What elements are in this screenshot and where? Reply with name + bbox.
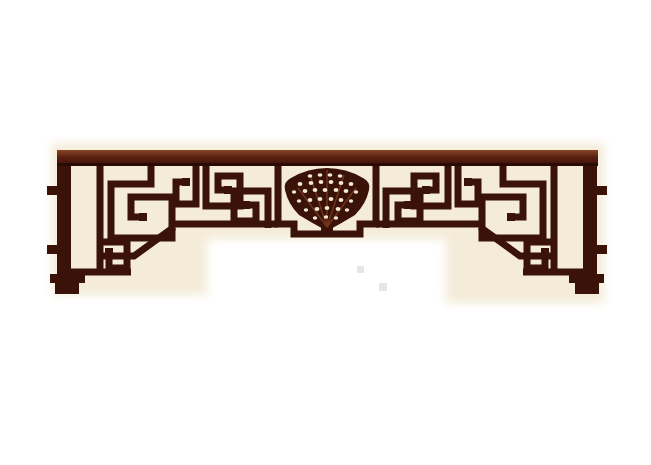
post-tenon-lower — [47, 245, 57, 254]
fan-hole — [323, 188, 328, 192]
fan-hole — [315, 207, 320, 211]
post-tenon-upper — [47, 186, 57, 195]
fan-hole — [298, 182, 303, 186]
fan-hole — [318, 173, 323, 177]
fan-hole — [303, 189, 308, 193]
fan-hole — [336, 207, 341, 211]
fan-hole — [345, 208, 349, 212]
fan-hole — [297, 199, 301, 203]
fan-hole — [308, 198, 313, 202]
fan-hole — [329, 180, 334, 184]
fan-hole — [339, 198, 344, 202]
fan-hole — [325, 206, 330, 210]
fan-hole — [329, 197, 334, 201]
fan-hole — [328, 173, 333, 177]
fan-hole — [349, 199, 353, 203]
fan-hole — [319, 180, 324, 184]
fan-hole — [334, 216, 338, 219]
fan-hole — [318, 197, 323, 201]
fan-hole — [334, 188, 339, 192]
fan-hole — [313, 188, 318, 192]
artifact-speck — [379, 283, 387, 291]
fan-hole — [308, 174, 313, 178]
fan-hole — [338, 174, 343, 178]
end-post — [57, 150, 71, 278]
fan-hole — [313, 216, 317, 219]
lattice-panel-image: Antique Chinese carved wooden openwork t… — [0, 0, 651, 465]
fan-hole — [304, 208, 308, 212]
lattice-panel-svg — [0, 0, 651, 465]
fan-hole — [344, 189, 349, 193]
fan-hole — [349, 182, 354, 186]
fan-hole — [292, 190, 296, 194]
fan-hole — [309, 181, 314, 185]
artifact-speck — [357, 266, 364, 273]
top-rail-group — [57, 150, 598, 166]
top-rail-bottom-edge — [57, 163, 598, 166]
fan-hole — [339, 181, 344, 185]
fan-hole — [324, 215, 328, 218]
fan-hole — [354, 190, 358, 194]
